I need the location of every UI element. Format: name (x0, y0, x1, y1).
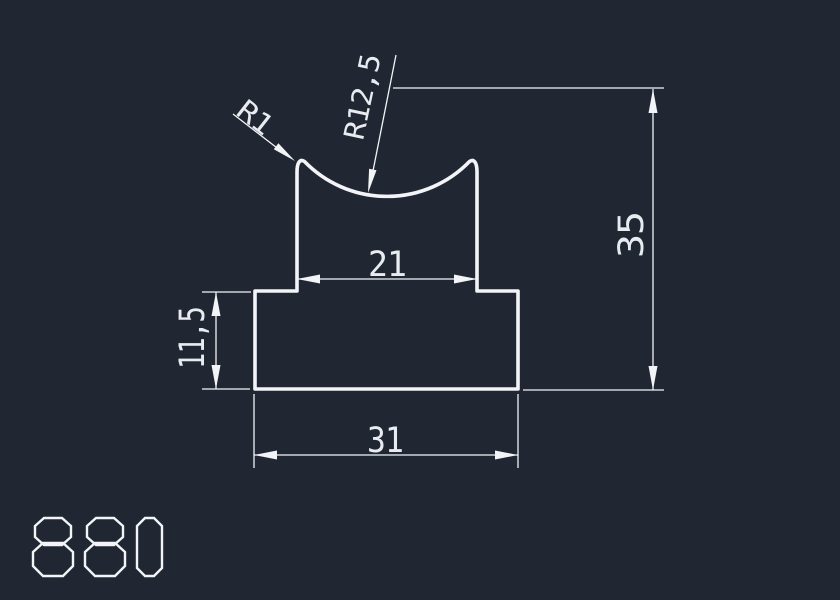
dim-label-corner-radius: R1 (230, 93, 279, 141)
arrowhead-top-width-right (454, 275, 477, 284)
part-number-digit-8 (85, 518, 125, 576)
dim-label-total-height: 35 (612, 212, 652, 258)
dim-label-top-width: 21 (368, 245, 406, 285)
technical-drawing: 21 31 35 11,5 R1 R12,5 (0, 0, 840, 600)
arrowhead-total-height-top (649, 89, 658, 113)
dim-label-base-width: 31 (367, 421, 403, 461)
arrowhead-groove-radius-leader (368, 169, 377, 193)
cad-canvas[interactable]: 21 31 35 11,5 R1 R12,5 (0, 0, 840, 600)
part-number-digit-8 (33, 518, 73, 576)
dim-label-base-height: 11,5 (173, 307, 213, 369)
dimension-labels: 21 31 35 11,5 R1 R12,5 (173, 52, 652, 461)
arrowhead-corner-radius-leader (274, 143, 295, 161)
arrowhead-top-width-left (297, 275, 320, 284)
arrowhead-total-height-bottom (649, 366, 658, 390)
part-number-glyphs (33, 518, 162, 576)
arrowhead-base-width-left (254, 451, 277, 460)
dim-label-groove-radius: R12,5 (337, 52, 387, 143)
part-number-digit-0 (137, 518, 162, 576)
arrowheads (212, 89, 658, 460)
arrowhead-base-width-right (495, 451, 518, 460)
